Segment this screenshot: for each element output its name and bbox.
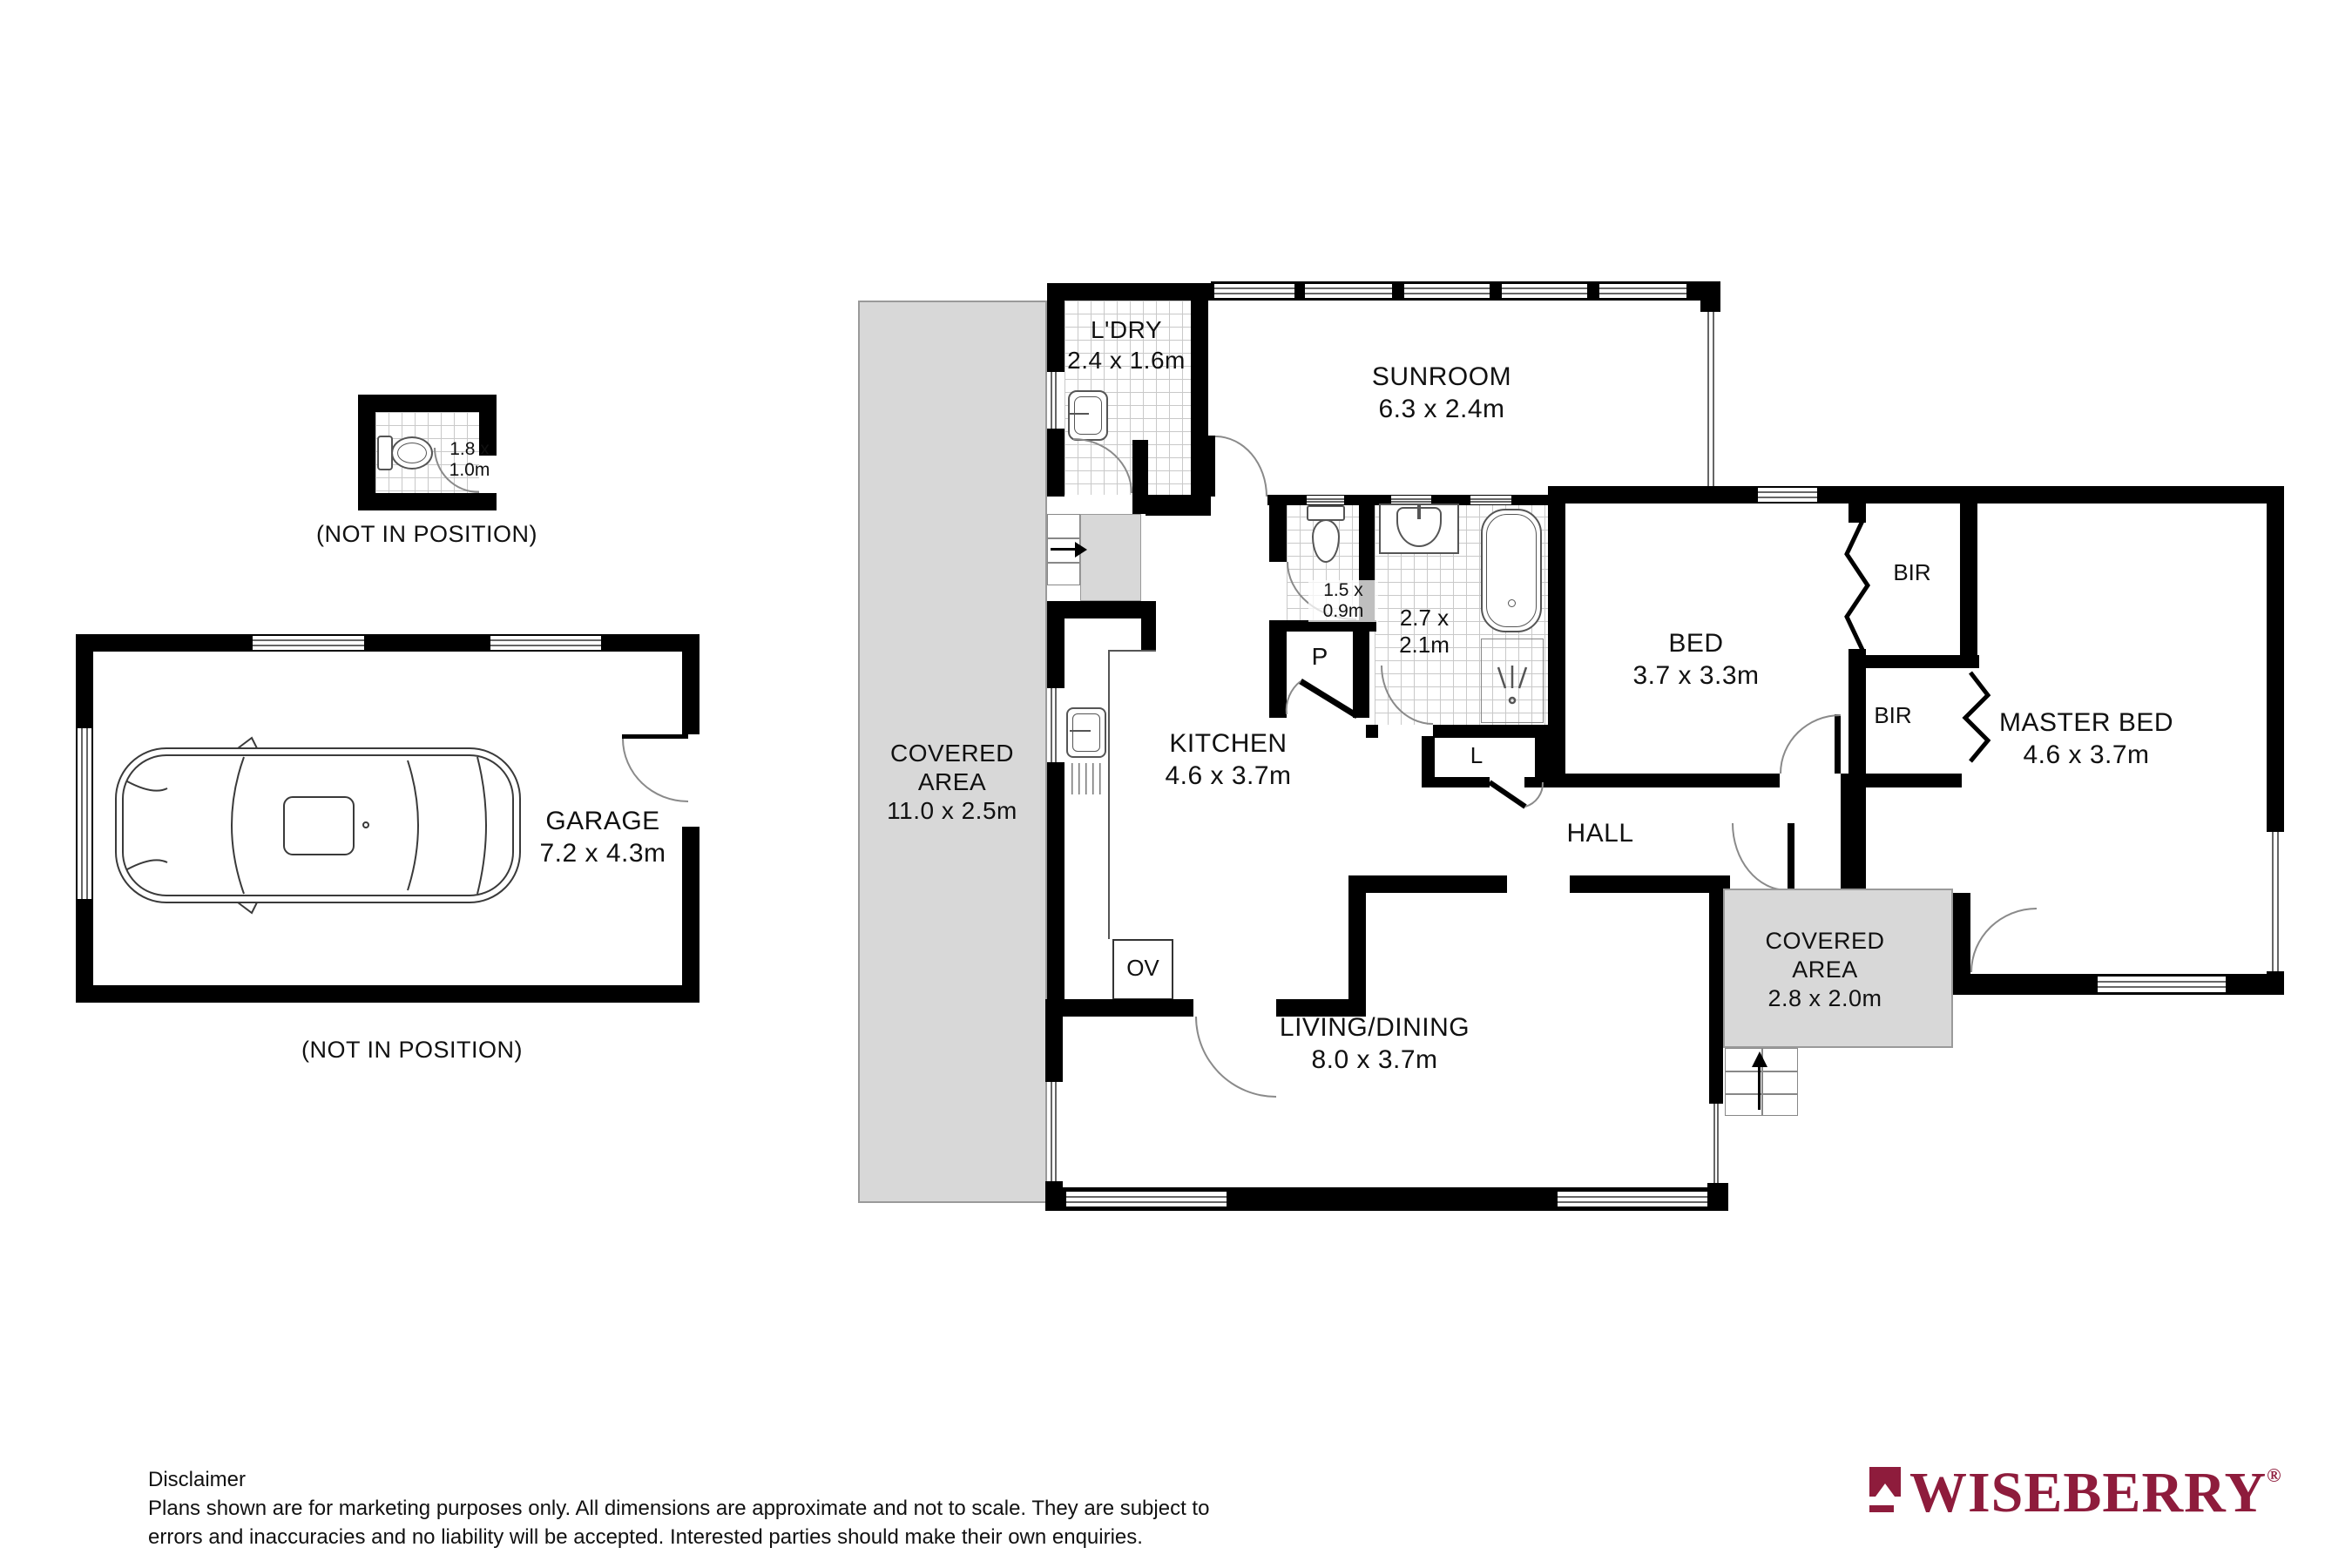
bir-bottom-label: BIR [1854, 702, 1932, 729]
garage-caption: (NOT IN POSITION) [273, 1037, 551, 1064]
wc-dims: 1.5 x0.9m [1308, 580, 1378, 622]
linen-door [1485, 781, 1546, 812]
sunroom-window [1214, 284, 1294, 298]
sunroom-door-leaf [1208, 436, 1215, 497]
living-window-west [1047, 1082, 1059, 1181]
floor-plan-canvas: 1.8 x1.0m (NOT IN POSITION) [0, 0, 2352, 1568]
master-bed-label: MASTER BED4.6 x 3.7m [1956, 706, 2217, 771]
living-dining-label: LIVING/DINING8.0 x 3.7m [1244, 1011, 1505, 1076]
sunroom-window-east [1703, 312, 1719, 486]
interior-window-sill [1470, 496, 1511, 504]
up-arrow-icon [1758, 1066, 1761, 1110]
master-window-south [2098, 977, 2226, 992]
car-icon [113, 736, 523, 915]
disclaimer: Disclaimer Plans shown are for marketing… [148, 1465, 1209, 1551]
covered-area-left-label: COVERED AREA 11.0 x 2.5m [865, 739, 1039, 825]
bed-door-arc [1780, 714, 1841, 774]
wc-iso-dims: 1.8 x1.0m [440, 439, 499, 481]
covered-area-right-label: COVERED AREA 2.8 x 2.0m [1738, 927, 1912, 1013]
disclaimer-line1: Plans shown are for marketing purposes o… [148, 1494, 1209, 1523]
sunroom-door-arc [1215, 436, 1267, 497]
wiseberry-wordmark: WISEBERRY® [1909, 1460, 2281, 1526]
wc-iso-caption: (NOT IN POSITION) [287, 521, 566, 548]
master-window-east [2268, 832, 2282, 971]
wiseberry-flag-icon [1869, 1467, 1901, 1497]
bed-window-top [1758, 488, 1817, 502]
interior-window-sill [1307, 496, 1344, 504]
bir-top-label: BIR [1873, 559, 1951, 586]
kitchen-window [1047, 688, 1059, 762]
living-window-east [1711, 1104, 1721, 1186]
garage-window-top-left [253, 636, 364, 650]
linen-label: L [1446, 742, 1507, 769]
bathroom-dims: 2.7 x2.1m [1369, 605, 1479, 659]
garage-window-left [78, 728, 91, 899]
disclaimer-title: Disclaimer [148, 1465, 1209, 1494]
living-window-south-left [1066, 1192, 1227, 1206]
disclaimer-line2: errors and inaccuracies and no liability… [148, 1523, 1209, 1551]
porch-door-arc [1732, 823, 1788, 891]
shower-symbol [1491, 664, 1535, 712]
kitchen-label: KITCHEN4.6 x 3.7m [1098, 727, 1359, 792]
right-arrow-icon [1051, 548, 1075, 551]
garage-door-arc [622, 739, 688, 802]
hall-label: HALL [1513, 817, 1687, 849]
sunroom-window [1305, 284, 1392, 298]
sunroom-window [1599, 284, 1686, 298]
sunroom-window [1502, 284, 1587, 298]
porch-door-leaf [1788, 823, 1794, 893]
garage-label: GARAGE7.2 x 4.3m [516, 805, 690, 869]
living-window-south-right [1558, 1192, 1709, 1206]
sunroom-window [1404, 284, 1490, 298]
oven-label: OV [1112, 955, 1173, 982]
laundry-label: L'DRY2.4 x 1.6m [1039, 314, 1213, 375]
pantry-door [1285, 679, 1363, 723]
pantry-label: P [1289, 643, 1350, 670]
bed-label: BED3.7 x 3.3m [1565, 627, 1827, 692]
entry-landing [1080, 514, 1141, 601]
sunroom-label: SUNROOM6.3 x 2.4m [1311, 361, 1572, 425]
garage-window-top-right [490, 636, 601, 650]
laundry-window [1047, 372, 1059, 429]
master-door-arc [1970, 908, 2037, 972]
